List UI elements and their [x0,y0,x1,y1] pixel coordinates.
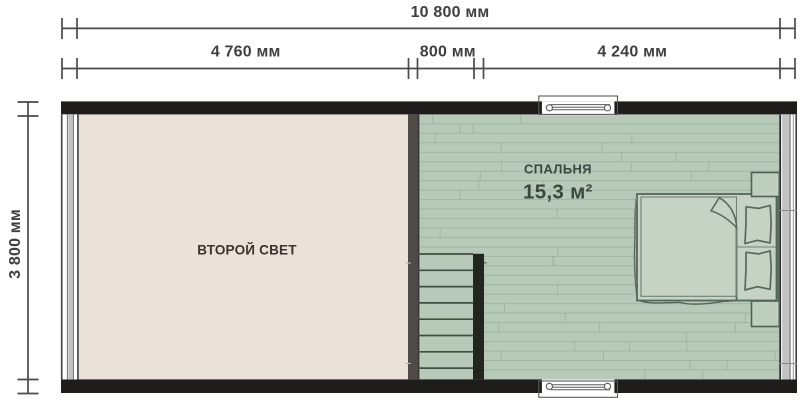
svg-text:СПАЛЬНЯ: СПАЛЬНЯ [524,161,592,176]
svg-text:10 800 мм: 10 800 мм [411,4,490,21]
svg-text:800 мм: 800 мм [420,44,476,61]
svg-text:ВТОРОЙ СВЕТ: ВТОРОЙ СВЕТ [197,243,297,258]
svg-text:3 800 мм: 3 800 мм [7,209,24,279]
svg-text:15,3 м²: 15,3 м² [523,180,593,203]
svg-text:4 240 мм: 4 240 мм [597,44,667,61]
svg-text:4 760 мм: 4 760 мм [211,44,281,61]
